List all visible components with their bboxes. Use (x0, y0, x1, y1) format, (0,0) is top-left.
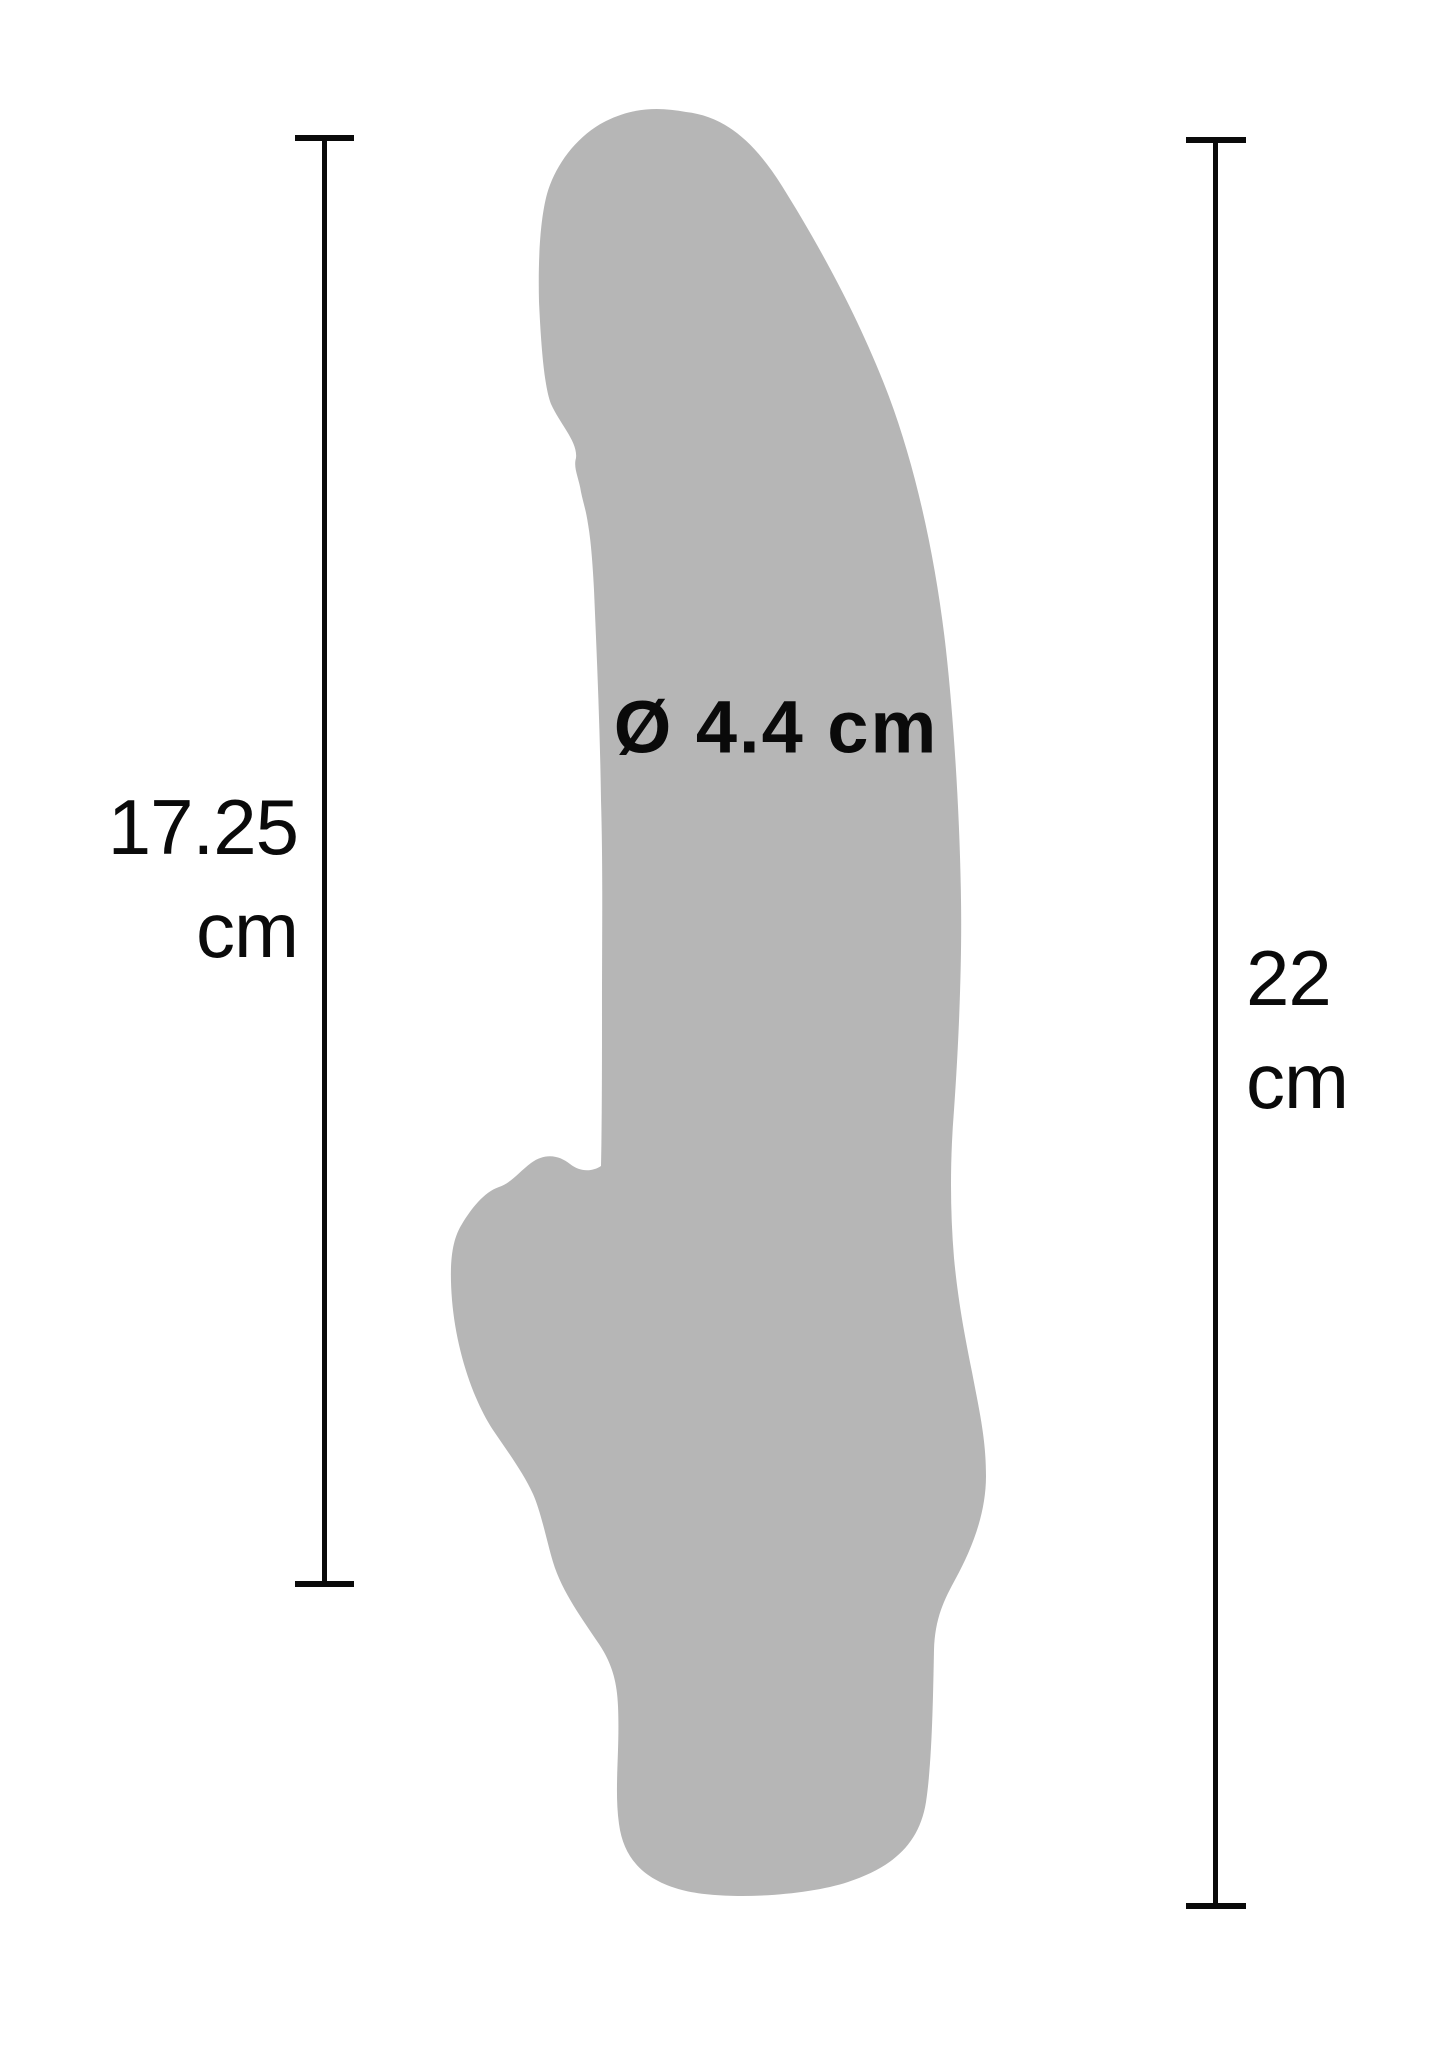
left-dimension-unit: cm (38, 879, 298, 982)
right-dimension-unit: cm (1246, 1030, 1348, 1133)
left-dimension-label: 17.25 cm (38, 776, 298, 982)
right-dimension-label: 22 cm (1246, 927, 1348, 1133)
left-dimension-value: 17.25 (38, 776, 298, 879)
right-dimension-value: 22 (1246, 927, 1348, 1030)
diagram-canvas (0, 0, 1445, 2047)
product-silhouette (451, 109, 986, 1896)
right-dimension-line (1186, 140, 1246, 1906)
product-dimension-diagram: 17.25 cm 22 cm Ø 4.4 cm (0, 0, 1445, 2047)
diameter-label: Ø 4.4 cm (614, 685, 939, 770)
left-dimension-line (295, 138, 354, 1584)
